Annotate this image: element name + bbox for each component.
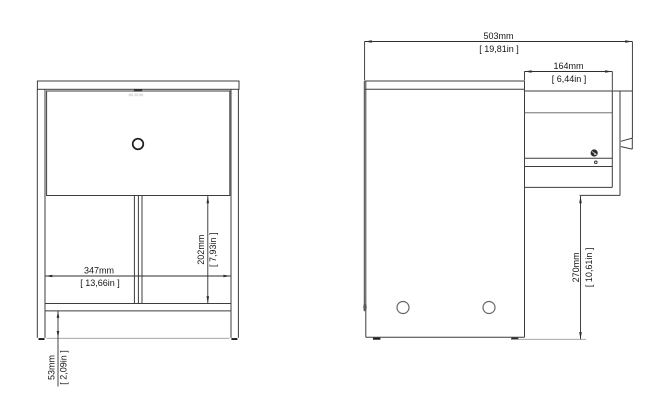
svg-text:53mm: 53mm [46, 355, 56, 380]
svg-text:[ 2,09in ]: [ 2,09in ] [59, 350, 69, 385]
svg-text:347mm: 347mm [84, 266, 114, 276]
svg-text:202mm: 202mm [196, 235, 206, 265]
svg-text:[ 7,93in ]: [ 7,93in ] [208, 232, 218, 267]
svg-text:[ 19,81in ]: [ 19,81in ] [479, 44, 519, 54]
svg-text:[ 6,44in ]: [ 6,44in ] [552, 74, 587, 84]
svg-text:164mm: 164mm [553, 61, 583, 71]
svg-text:270mm: 270mm [571, 252, 581, 282]
svg-text:503mm: 503mm [483, 31, 513, 41]
svg-text:[ 13,66in ]: [ 13,66in ] [80, 278, 120, 288]
svg-text:[ 10,61in ]: [ 10,61in ] [584, 248, 594, 288]
